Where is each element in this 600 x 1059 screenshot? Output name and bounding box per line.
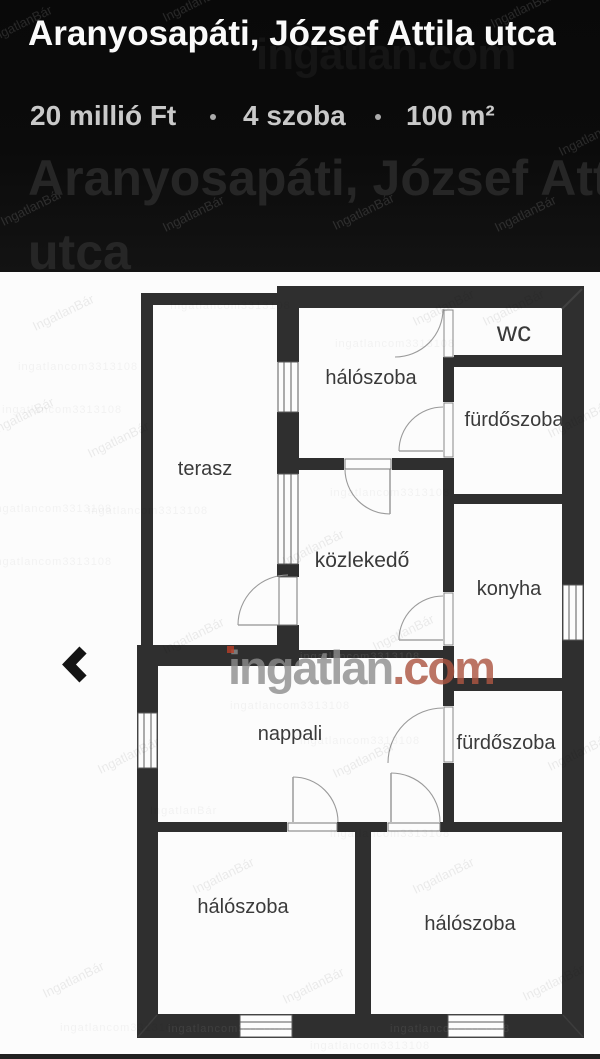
svg-text:ingatlancom3313108: ingatlancom3313108	[390, 1023, 510, 1035]
svg-text:ingatlancom3313108: ingatlancom3313108	[168, 1023, 288, 1035]
svg-text:hálószoba: hálószoba	[325, 367, 417, 389]
svg-text:hálószoba: hálószoba	[424, 913, 516, 935]
svg-text:fürdőszoba: fürdőszoba	[457, 732, 557, 754]
svg-text:ingatlan.com: ingatlan.com	[228, 641, 494, 694]
svg-text:közlekedő: közlekedő	[315, 549, 410, 572]
svg-text:terasz: terasz	[178, 458, 232, 480]
svg-text:hálószoba: hálószoba	[197, 896, 289, 918]
svg-text:konyha: konyha	[477, 578, 542, 600]
